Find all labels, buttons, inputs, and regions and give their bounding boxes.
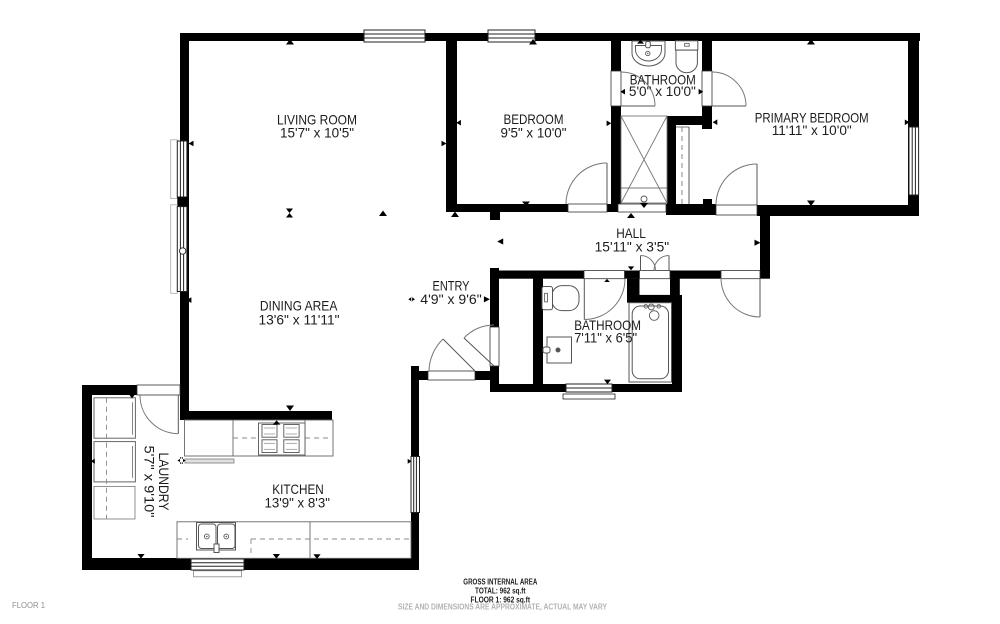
svg-text:DINING AREA: DINING AREA bbox=[260, 298, 338, 313]
svg-text:9'5" x 10'0": 9'5" x 10'0" bbox=[501, 125, 567, 140]
svg-text:13'9" x 8'3": 13'9" x 8'3" bbox=[264, 496, 330, 511]
svg-text:5'0" x 10'0": 5'0" x 10'0" bbox=[629, 84, 696, 99]
svg-text:15'7" x 10'5": 15'7" x 10'5" bbox=[280, 126, 354, 141]
svg-text:FLOOR 1: FLOOR 1 bbox=[12, 600, 45, 610]
svg-text:7'11" x 6'5": 7'11" x 6'5" bbox=[574, 331, 637, 346]
svg-text:11'11" x 10'0": 11'11" x 10'0" bbox=[772, 123, 852, 138]
svg-text:4'9" x 9'6": 4'9" x 9'6" bbox=[420, 292, 482, 307]
svg-text:13'6" x 11'11": 13'6" x 11'11" bbox=[259, 313, 340, 328]
svg-text:LAUNDRY: LAUNDRY bbox=[156, 453, 171, 511]
svg-text:GROSS INTERNAL AREA: GROSS INTERNAL AREA bbox=[463, 577, 537, 586]
svg-text:5'7" x 9'10": 5'7" x 9'10" bbox=[142, 446, 157, 518]
svg-text:15'11" x 3'5": 15'11" x 3'5" bbox=[595, 240, 670, 255]
svg-text:SIZE AND DIMENSIONS ARE APPROX: SIZE AND DIMENSIONS ARE APPROXIMATE, ACT… bbox=[398, 603, 608, 612]
svg-text:TOTAL: 962 sq.ft: TOTAL: 962 sq.ft bbox=[475, 586, 526, 595]
